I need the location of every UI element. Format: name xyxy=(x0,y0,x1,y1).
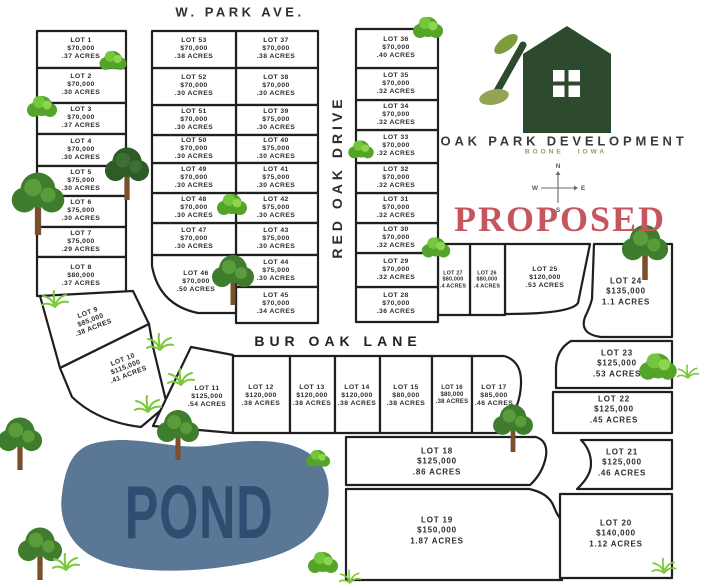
lot-47-parcel xyxy=(152,223,236,255)
plat-drawing: N E S W xyxy=(0,0,701,588)
lot-42-parcel xyxy=(236,193,318,223)
lot-50-parcel xyxy=(152,135,236,163)
lot-14-parcel xyxy=(335,356,380,433)
bush-icon xyxy=(308,552,338,573)
lot-12-parcel xyxy=(233,356,290,433)
lot-13-parcel xyxy=(290,356,335,433)
lot-20-parcel xyxy=(560,494,672,578)
lot-18-parcel xyxy=(346,437,546,485)
lot-43-parcel xyxy=(236,223,318,255)
lot-26-parcel xyxy=(470,244,505,315)
lot-40-parcel xyxy=(236,135,318,163)
lot-22-parcel xyxy=(553,392,672,433)
lot-21-parcel xyxy=(577,440,672,489)
lot-34-parcel xyxy=(356,100,438,130)
lot-29-parcel xyxy=(356,253,438,287)
lot-28-parcel xyxy=(356,287,438,322)
lot-53-parcel xyxy=(152,31,236,68)
lot-25-parcel xyxy=(505,244,590,314)
compass-e-label: E xyxy=(581,185,586,192)
bush-icon xyxy=(413,17,443,38)
lot-37-parcel xyxy=(236,31,318,68)
tree-icon xyxy=(18,528,62,581)
lot-2-parcel xyxy=(37,68,126,103)
grass-icon xyxy=(678,365,699,378)
lot-16-parcel xyxy=(432,356,472,433)
lot-31-parcel xyxy=(356,193,438,223)
compass-s-label: S xyxy=(556,207,561,214)
lot-38-parcel xyxy=(236,68,318,105)
compass-w-label: W xyxy=(532,185,539,192)
lot-49-parcel xyxy=(152,163,236,193)
lot-8-parcel xyxy=(37,257,126,296)
bush-icon xyxy=(306,450,330,467)
house-logo-icon xyxy=(478,26,611,133)
lot-52-parcel xyxy=(152,68,236,105)
pond-shape xyxy=(61,440,328,571)
compass-n-label: N xyxy=(556,163,561,170)
lot-39-parcel xyxy=(236,105,318,135)
lot-15-parcel xyxy=(380,356,432,433)
lot-51-parcel xyxy=(152,105,236,135)
tree-icon xyxy=(0,418,42,471)
lot-35-parcel xyxy=(356,68,438,100)
lot-32-parcel xyxy=(356,163,438,193)
lot-19-parcel xyxy=(346,489,562,580)
lot-7-parcel xyxy=(37,227,126,257)
compass-icon: N E S W xyxy=(532,163,586,214)
plat-map: N E S W W. PARK AVE. RED OAK DRIVE BUR O… xyxy=(0,0,701,588)
lot-45-parcel xyxy=(236,287,318,323)
lot-41-parcel xyxy=(236,163,318,193)
